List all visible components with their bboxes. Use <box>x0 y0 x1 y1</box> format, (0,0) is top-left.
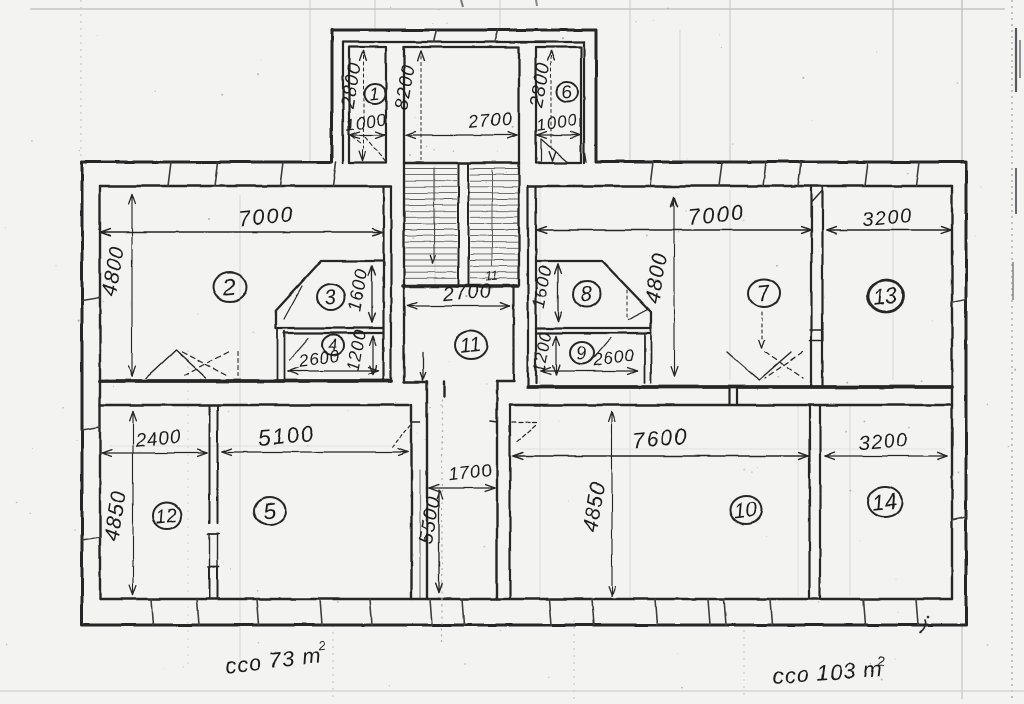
svg-text:5100: 5100 <box>257 421 316 451</box>
svg-text:9: 9 <box>575 343 587 364</box>
svg-text:7600: 7600 <box>631 424 690 454</box>
svg-text:13: 13 <box>872 282 900 310</box>
svg-text:2: 2 <box>220 274 237 302</box>
svg-text:3200: 3200 <box>861 205 913 231</box>
svg-text:11: 11 <box>459 334 482 358</box>
svg-text:1: 1 <box>368 84 380 105</box>
svg-text:3200: 3200 <box>857 429 909 455</box>
svg-text:14: 14 <box>871 488 898 515</box>
svg-text:2700: 2700 <box>467 108 514 132</box>
svg-text:7000: 7000 <box>687 200 746 230</box>
svg-text:12: 12 <box>155 505 179 528</box>
svg-text:7000: 7000 <box>237 202 296 232</box>
svg-text:2700: 2700 <box>440 280 493 306</box>
svg-text:10: 10 <box>733 498 759 523</box>
